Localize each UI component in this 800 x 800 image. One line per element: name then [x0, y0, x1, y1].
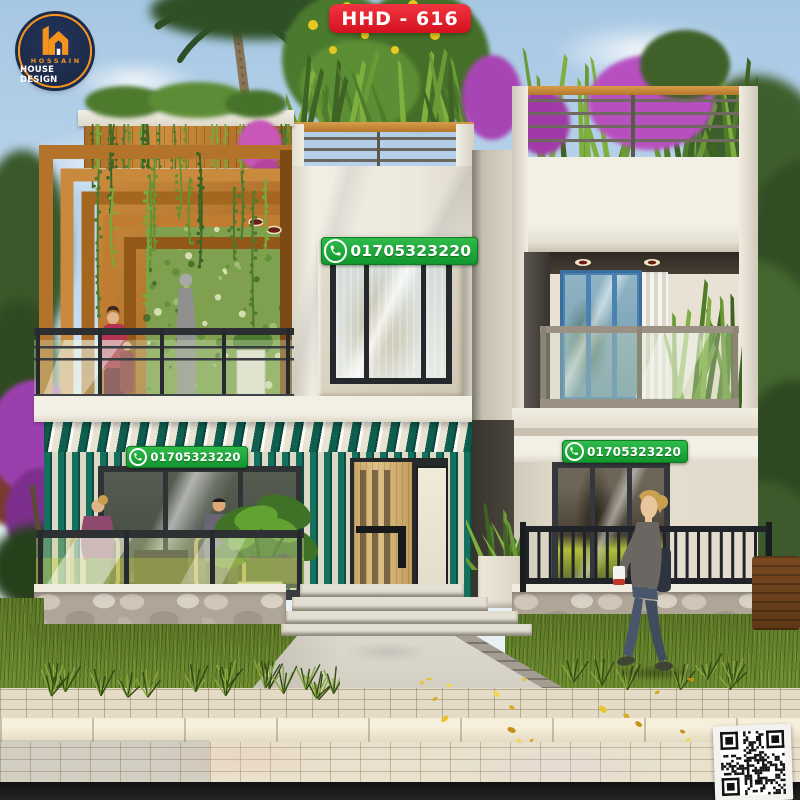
roof-rail-post [631, 95, 635, 157]
roof-spiky-plants [286, 42, 474, 128]
downlight [575, 259, 591, 266]
terrace-slat-ceiling [44, 422, 472, 454]
roof-vine-bush [225, 90, 287, 118]
whatsapp-phone-icon [324, 239, 347, 262]
roof-rail [303, 137, 457, 140]
entry-step [292, 597, 488, 611]
logo-text-house-design: HOUSE DESIGN [20, 65, 90, 85]
logo-circle: HOSSAIN HOUSE DESIGN [18, 14, 92, 88]
phone-number: 01705323220 [350, 242, 471, 260]
roof-rail-wood-cap [286, 122, 474, 132]
whatsapp-phone-icon [565, 442, 584, 461]
whatsapp-badge-window: 01705323220 [321, 237, 478, 265]
qr-code [713, 724, 794, 800]
model-number-badge: HHD - 616 [329, 4, 471, 33]
window-glass [336, 256, 446, 378]
downlight [644, 259, 660, 266]
logo-text-hossain: HOSSAIN [28, 57, 82, 65]
entry-step [281, 624, 532, 636]
door-handle [398, 526, 406, 568]
garden-bench [752, 556, 800, 630]
walking-woman [603, 486, 703, 686]
road-edge [0, 782, 800, 800]
stone-cap [34, 584, 286, 592]
entry-step [300, 584, 464, 597]
window-mullion [421, 256, 426, 378]
qr-code-pattern [720, 730, 786, 796]
roof-rail-wood-cap [512, 86, 758, 95]
phone-number: 01705323220 [150, 450, 240, 464]
terrace-fascia-band [34, 396, 472, 422]
recessed-side-wall [472, 150, 516, 420]
door-side-panel [416, 466, 448, 596]
entry-step [286, 611, 518, 624]
fallen-leaves [420, 678, 710, 744]
slab-shadow [512, 428, 758, 436]
phone-number: 01705323220 [587, 445, 681, 459]
whatsapp-badge-right: 01705323220 [562, 440, 688, 463]
house-h-icon [40, 23, 70, 55]
right-parapet [528, 157, 739, 252]
tree-shadow-on-pavement [0, 740, 210, 784]
whatsapp-phone-icon [129, 448, 147, 466]
architectural-render: HOSSAIN HOUSE DESIGN HHD - 616 017053232… [0, 0, 800, 800]
balcony-slab [512, 408, 758, 430]
parapet-slab-shadow [528, 240, 739, 252]
window-mullion [364, 256, 369, 378]
tall-grass [0, 636, 340, 702]
balcony-railing [34, 324, 294, 404]
roof-rail-post [377, 132, 380, 166]
whatsapp-badge-terrace: 01705323220 [126, 446, 248, 468]
roof-rail [303, 148, 457, 151]
balcony-railing [540, 326, 739, 410]
roof-rail [303, 159, 457, 162]
company-logo: HOSSAIN HOUSE DESIGN [16, 12, 96, 98]
